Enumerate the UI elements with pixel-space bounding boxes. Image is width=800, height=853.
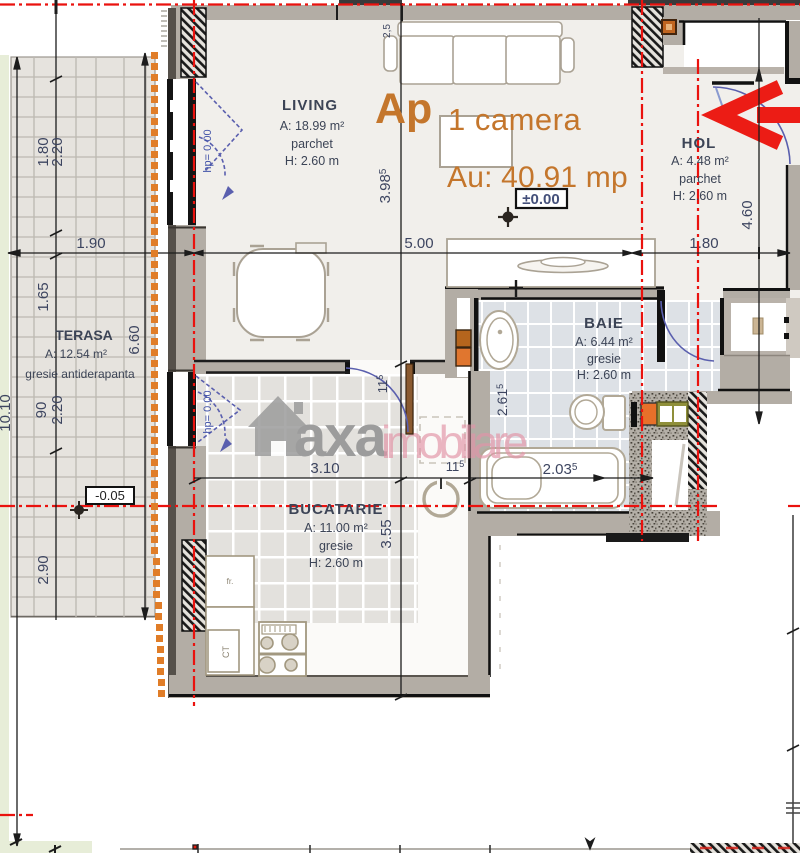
svg-text:H: 2.60 m: H: 2.60 m [673, 189, 727, 203]
svg-text:1.80: 1.80 [689, 235, 718, 252]
svg-text:gresie antiderapanta: gresie antiderapanta [25, 367, 135, 381]
svg-text:4.60: 4.60 [739, 200, 756, 229]
svg-text:-0.05: -0.05 [95, 488, 125, 503]
svg-text:LIVING: LIVING [282, 97, 338, 114]
svg-text:hp= 0.00: hp= 0.00 [202, 129, 214, 172]
svg-text:gresie: gresie [319, 539, 353, 553]
svg-text:2.20: 2.20 [49, 395, 66, 424]
svg-text:A: 18.99 m²: A: 18.99 m² [280, 119, 345, 133]
svg-text:parchet: parchet [291, 137, 333, 151]
svg-text:H: 2.60 m: H: 2.60 m [577, 368, 631, 382]
svg-text:H: 2.60 m: H: 2.60 m [285, 154, 339, 168]
svg-text:TERASA: TERASA [55, 327, 113, 343]
svg-text:H: 2.60 m: H: 2.60 m [309, 556, 363, 570]
svg-text:gresie: gresie [587, 352, 621, 366]
svg-text:3.55: 3.55 [378, 519, 395, 548]
svg-text:10.10: 10.10 [0, 394, 14, 432]
svg-text:2.90: 2.90 [35, 555, 52, 584]
svg-text:BUCATARIE: BUCATARIE [288, 501, 383, 518]
svg-text:1.65: 1.65 [35, 282, 52, 311]
svg-text:2,5: 2,5 [382, 24, 393, 38]
svg-text:1.90: 1.90 [76, 235, 105, 252]
svg-text:BAIE: BAIE [584, 315, 624, 332]
svg-text:1 camera: 1 camera [448, 102, 581, 137]
svg-text:A: 12.54 m²: A: 12.54 m² [45, 347, 107, 361]
svg-text:Au: 40.91 mp: Au: 40.91 mp [447, 161, 628, 194]
svg-text:3.10: 3.10 [310, 460, 339, 477]
svg-text:fr.: fr. [227, 577, 234, 586]
svg-text:CT: CT [221, 646, 231, 658]
svg-text:Ap: Ap [375, 85, 432, 133]
svg-text:HOL: HOL [682, 135, 717, 152]
svg-text:90: 90 [33, 402, 50, 419]
svg-text:A: 4.48 m²: A: 4.48 m² [671, 154, 729, 168]
svg-text:hp= 0.00: hp= 0.00 [202, 390, 214, 433]
svg-text:axa: axa [294, 404, 388, 469]
svg-text:2.20: 2.20 [49, 137, 66, 166]
svg-text:5.00: 5.00 [404, 235, 433, 252]
svg-text:A: 11.00 m²: A: 11.00 m² [304, 521, 368, 535]
svg-text:A: 6.44 m²: A: 6.44 m² [575, 335, 633, 349]
svg-text:6.60: 6.60 [126, 325, 143, 354]
svg-text:parchet: parchet [679, 172, 721, 186]
